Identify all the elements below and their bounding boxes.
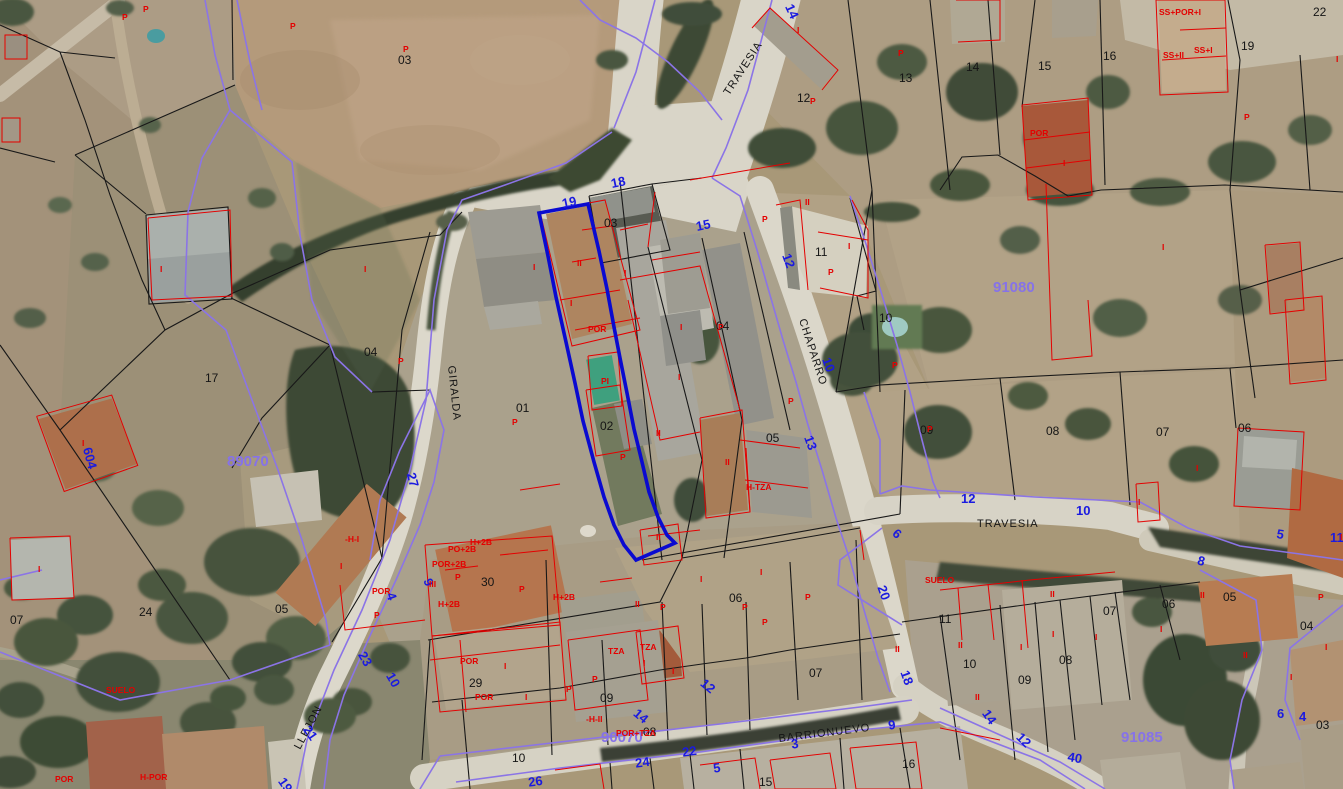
svg-text:08: 08 — [1046, 424, 1060, 438]
svg-text:TZA: TZA — [608, 646, 625, 656]
svg-text:22: 22 — [681, 743, 697, 760]
svg-text:II: II — [656, 428, 661, 438]
svg-text:POR: POR — [372, 586, 390, 596]
svg-text:03: 03 — [1316, 718, 1330, 732]
svg-text:II: II — [635, 599, 640, 609]
svg-text:24: 24 — [139, 605, 153, 619]
svg-text:4: 4 — [1299, 709, 1307, 724]
svg-text:40: 40 — [1067, 749, 1084, 766]
svg-text:SS+I: SS+I — [1194, 45, 1213, 55]
svg-text:P: P — [403, 44, 409, 54]
svg-text:H+2B: H+2B — [438, 599, 460, 609]
svg-text:I: I — [504, 661, 506, 671]
svg-text:P: P — [927, 424, 933, 434]
svg-text:04: 04 — [1300, 619, 1314, 633]
svg-text:05: 05 — [1223, 590, 1237, 604]
svg-text:I: I — [160, 264, 162, 274]
svg-text:P: P — [290, 21, 296, 31]
svg-text:POR: POR — [460, 656, 478, 666]
svg-text:P: P — [620, 452, 626, 462]
svg-text:II: II — [1243, 650, 1248, 660]
svg-text:19: 19 — [1241, 39, 1255, 53]
svg-text:POR: POR — [588, 324, 606, 334]
svg-text:06: 06 — [729, 591, 743, 605]
svg-text:I: I — [680, 322, 682, 332]
svg-text:POR: POR — [55, 774, 73, 784]
svg-text:I: I — [700, 574, 702, 584]
svg-text:I: I — [848, 241, 850, 251]
svg-text:P: P — [892, 360, 898, 370]
svg-text:I: I — [364, 264, 366, 274]
svg-text:POR+TZA: POR+TZA — [616, 728, 656, 738]
svg-text:I: I — [624, 268, 626, 278]
svg-text:II: II — [577, 258, 582, 268]
svg-text:I: I — [570, 298, 572, 308]
svg-text:SUELO: SUELO — [106, 685, 136, 695]
svg-text:10: 10 — [512, 751, 526, 765]
svg-text:13: 13 — [899, 71, 913, 85]
svg-text:10: 10 — [879, 311, 893, 325]
svg-text:P: P — [143, 4, 149, 14]
svg-text:07: 07 — [10, 613, 24, 627]
svg-text:I: I — [1020, 642, 1022, 652]
svg-text:I: I — [797, 25, 799, 35]
svg-text:I: I — [678, 372, 680, 382]
svg-text:I: I — [525, 692, 527, 702]
svg-text:89070: 89070 — [227, 453, 269, 470]
svg-text:P: P — [762, 617, 768, 627]
svg-text:30: 30 — [481, 575, 495, 589]
svg-text:P: P — [566, 684, 572, 694]
svg-text:PI: PI — [601, 376, 609, 386]
svg-text:P: P — [398, 356, 404, 366]
svg-text:I: I — [1095, 632, 1097, 642]
svg-text:P: P — [788, 396, 794, 406]
svg-text:10: 10 — [963, 657, 977, 671]
svg-text:15: 15 — [1038, 59, 1052, 73]
svg-text:16: 16 — [902, 757, 916, 771]
svg-text:18: 18 — [610, 173, 627, 191]
svg-text:P: P — [519, 584, 525, 594]
svg-text:14: 14 — [966, 60, 980, 74]
svg-text:POR: POR — [475, 692, 493, 702]
svg-text:P: P — [805, 592, 811, 602]
svg-text:I: I — [1196, 463, 1198, 473]
svg-text:11: 11 — [815, 245, 828, 259]
svg-text:I: I — [38, 564, 40, 574]
svg-text:07: 07 — [1156, 425, 1170, 439]
svg-text:I: I — [340, 561, 342, 571]
svg-text:06: 06 — [1238, 421, 1252, 435]
svg-text:I: I — [533, 262, 535, 272]
svg-text:I: I — [1325, 642, 1327, 652]
svg-text:II: II — [975, 692, 980, 702]
svg-text:I: I — [1138, 497, 1140, 507]
svg-text:01: 01 — [516, 401, 530, 415]
svg-text:91080: 91080 — [993, 279, 1035, 296]
svg-text:12: 12 — [961, 491, 975, 506]
svg-text:91085: 91085 — [1121, 729, 1163, 746]
svg-text:04: 04 — [364, 345, 378, 359]
svg-text:P: P — [742, 602, 748, 612]
svg-text:I: I — [1052, 629, 1054, 639]
svg-text:I: I — [672, 666, 674, 676]
svg-text:15: 15 — [759, 775, 773, 789]
svg-text:P: P — [122, 12, 128, 22]
svg-text:II: II — [895, 644, 900, 654]
svg-text:I: I — [1063, 158, 1065, 168]
svg-text:I: I — [1160, 624, 1162, 634]
svg-text:26: 26 — [527, 773, 543, 789]
svg-text:P: P — [374, 610, 380, 620]
svg-text:II: II — [725, 457, 730, 467]
svg-text:05: 05 — [766, 431, 780, 445]
svg-text:SUELO: SUELO — [925, 575, 955, 585]
svg-text:H-TZA: H-TZA — [746, 482, 772, 492]
svg-text:10: 10 — [1076, 503, 1090, 518]
svg-text:I: I — [82, 438, 84, 448]
svg-text:P: P — [828, 267, 834, 277]
svg-text:P: P — [898, 48, 904, 58]
svg-text:22: 22 — [1313, 5, 1327, 19]
svg-text:16: 16 — [1103, 49, 1117, 63]
svg-text:SS+II: SS+II — [1163, 50, 1184, 60]
svg-text:II: II — [1200, 590, 1205, 600]
svg-text:POR+2B: POR+2B — [432, 559, 466, 569]
svg-text:TRAVESIA: TRAVESIA — [977, 518, 1039, 530]
svg-text:02: 02 — [600, 419, 614, 433]
svg-text:P: P — [718, 322, 724, 332]
svg-text:TZA: TZA — [640, 642, 657, 652]
svg-text:II: II — [958, 640, 963, 650]
svg-text:6: 6 — [1277, 706, 1284, 721]
svg-text:P: P — [762, 214, 768, 224]
svg-text:P: P — [1244, 112, 1250, 122]
svg-text:06: 06 — [1162, 597, 1176, 611]
svg-text:11: 11 — [939, 612, 952, 626]
svg-text:I: I — [760, 567, 762, 577]
svg-text:P: P — [592, 674, 598, 684]
svg-text:I: I — [643, 658, 645, 668]
svg-text:P: P — [810, 96, 816, 106]
svg-text:17: 17 — [205, 371, 219, 385]
svg-text:P: P — [1318, 592, 1324, 602]
svg-text:II: II — [656, 532, 661, 542]
svg-text:I: I — [1336, 54, 1338, 64]
svg-text:03: 03 — [604, 216, 618, 230]
svg-text:12: 12 — [797, 91, 811, 105]
svg-text:H-POR: H-POR — [140, 772, 167, 782]
svg-text:08: 08 — [1059, 653, 1073, 667]
svg-text:I: I — [1162, 242, 1164, 252]
svg-text:09: 09 — [1018, 673, 1032, 687]
svg-text:POR: POR — [1030, 128, 1048, 138]
svg-text:H+2B: H+2B — [553, 592, 575, 602]
svg-text:SS+POR+I: SS+POR+I — [1159, 7, 1201, 17]
svg-text:05: 05 — [275, 602, 289, 616]
svg-text:29: 29 — [469, 676, 483, 690]
svg-text:I: I — [1340, 532, 1342, 542]
svg-text:09: 09 — [600, 691, 614, 705]
svg-text:III: III — [429, 579, 436, 589]
svg-text:-H-II: -H-II — [586, 714, 603, 724]
svg-text:P: P — [455, 572, 461, 582]
svg-text:24: 24 — [634, 754, 651, 771]
svg-text:H+2B: H+2B — [470, 537, 492, 547]
svg-text:P: P — [660, 602, 666, 612]
svg-text:07: 07 — [1103, 604, 1117, 618]
svg-text:07: 07 — [809, 666, 823, 680]
svg-text:II: II — [1050, 589, 1055, 599]
svg-text:19: 19 — [561, 193, 578, 211]
svg-text:II: II — [805, 197, 810, 207]
svg-text:-H-I: -H-I — [345, 534, 359, 544]
svg-text:I: I — [1290, 672, 1292, 682]
svg-text:15: 15 — [695, 216, 712, 234]
svg-text:P: P — [512, 417, 518, 427]
svg-text:03: 03 — [398, 53, 412, 67]
